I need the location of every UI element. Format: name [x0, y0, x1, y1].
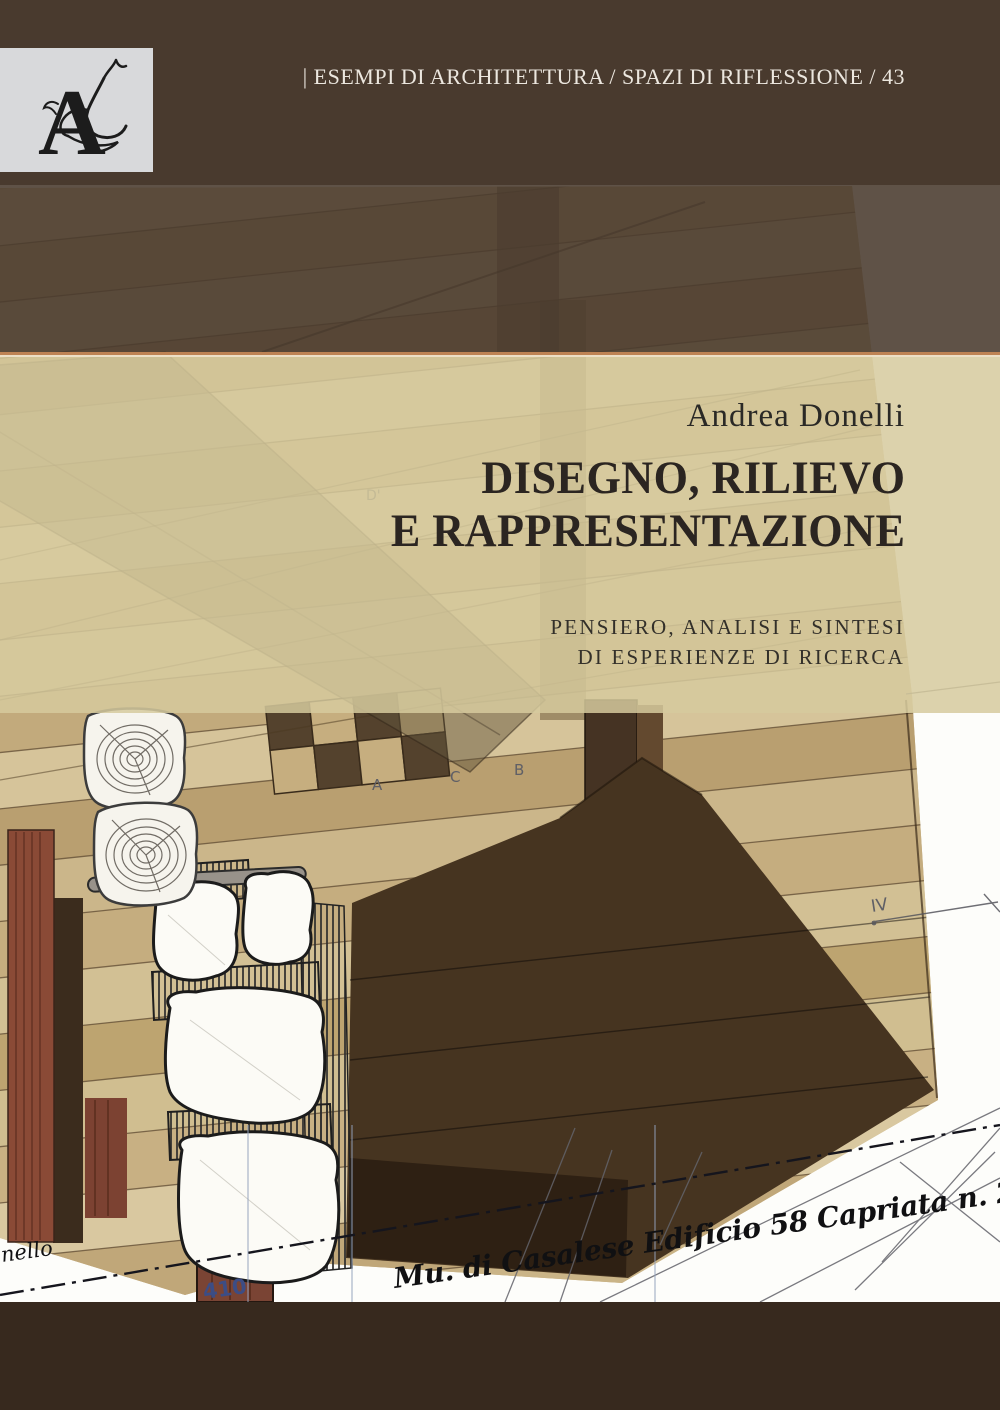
pencil-label-b: B — [514, 761, 524, 779]
book-title-line-2: E RAPPRESENTAZIONE — [390, 505, 905, 558]
author-name: Andrea Donelli — [687, 398, 905, 435]
ashlar-stones — [154, 872, 339, 1283]
publisher-logo-box: A — [0, 48, 153, 172]
book-subtitle: PENSIERO, ANALISI E SINTESI DI ESPERIENZ… — [550, 612, 905, 672]
pencil-label-c: C — [450, 768, 460, 786]
pencil-label-iv: IV — [870, 895, 890, 917]
book-subtitle-line-1: PENSIERO, ANALISI E SINTESI — [550, 612, 905, 642]
series-title: | ESEMPI DI ARCHITETTURA / SPAZI DI RIFL… — [303, 64, 905, 90]
red-post-mid — [85, 1098, 127, 1218]
book-title-line-1: DISEGNO, RILIEVO — [390, 452, 905, 505]
log-end-top — [84, 709, 185, 810]
pencil-label-a: A — [372, 776, 383, 794]
red-post-left — [8, 830, 54, 1242]
book-cover: A C B D' IV Mu. di Casalese Edificio 58 … — [0, 0, 1000, 1410]
log-end-bottom — [94, 803, 197, 906]
book-title: DISEGNO, RILIEVO E RAPPRESENTAZIONE — [390, 452, 905, 558]
logo-letter: A — [38, 71, 106, 172]
book-subtitle-line-2: DI ESPERIENZE DI RICERCA — [550, 642, 905, 672]
bottom-band — [0, 1302, 1000, 1410]
aracne-logo-icon: A — [0, 48, 153, 172]
